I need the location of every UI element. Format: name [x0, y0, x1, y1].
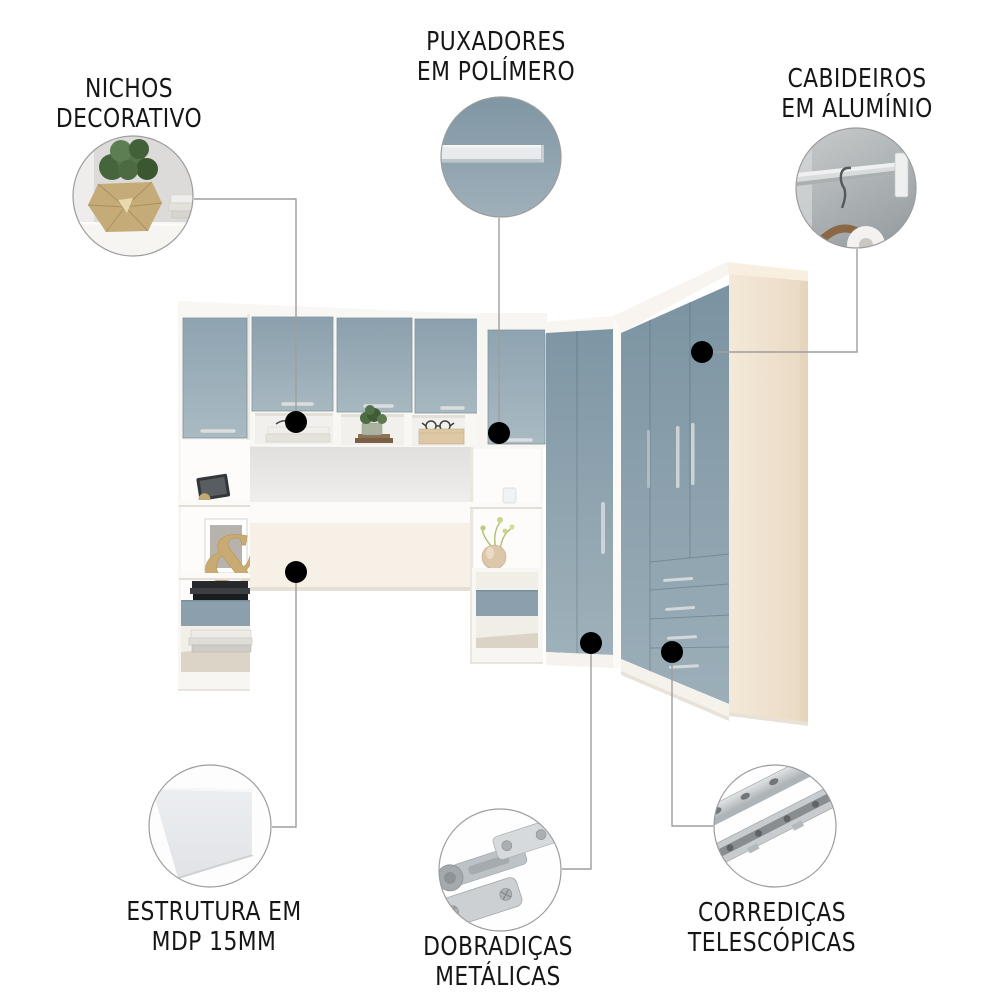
aluminum-rail-photo-icon	[796, 128, 916, 264]
bridge-door-1	[252, 317, 333, 411]
wardrobe-illustration: &	[178, 262, 808, 726]
bridge-cabinets	[250, 315, 478, 450]
label-line: TELESCÓPICAS	[671, 928, 873, 958]
corner-door	[546, 329, 613, 655]
left-tower-door-handle	[200, 429, 236, 433]
light-books-stack	[189, 630, 252, 652]
callout-label-corredicas: CORREDIÇAS TELESCÓPICAS	[671, 898, 873, 958]
glass-cup	[503, 488, 516, 503]
left-tower: &	[178, 314, 261, 690]
callout-dot-corredicas	[661, 641, 683, 663]
telescopic-slides-photo-icon	[683, 751, 846, 888]
corner-edge	[613, 316, 621, 668]
metal-hinge-photo-icon	[419, 808, 573, 932]
callout-label-puxadores: PUXADORES EM POLÍMERO	[395, 27, 597, 87]
right-tower-top-cabinet	[477, 313, 547, 447]
door-handle	[505, 438, 533, 442]
books-on-shelf	[169, 195, 198, 218]
label-line: ESTRUTURA EM	[113, 897, 315, 927]
corner-door-handle	[601, 502, 605, 554]
callout-label-dobradicas: DOBRADIÇAS METÁLICAS	[397, 932, 599, 992]
door-handle	[676, 426, 680, 488]
connector-line-dobradicas	[562, 643, 591, 869]
label-line: METÁLICAS	[397, 962, 599, 992]
label-line: CORREDIÇAS	[671, 898, 873, 928]
callout-label-estrutura: ESTRUTURA EM MDP 15MM	[113, 897, 315, 957]
label-line: PUXADORES	[395, 27, 597, 57]
door-handle	[691, 423, 695, 485]
polymer-handle-photo-icon	[436, 97, 561, 217]
door-handle	[281, 402, 314, 406]
door-handle	[440, 406, 465, 410]
callout-circle-cabideiros	[796, 128, 916, 264]
wardrobe-illustration-svg: &	[0, 0, 1000, 1000]
label-line: CABIDEIROS	[756, 64, 958, 94]
callout-circle-dobradicas	[419, 808, 573, 932]
right-tower-drawer	[476, 590, 538, 616]
left-tower-door	[183, 318, 247, 438]
left-tower-drawer	[181, 600, 250, 626]
product-infographic: &	[0, 0, 1000, 1000]
headboard-panel	[250, 447, 470, 591]
connector-line-estrutura	[272, 572, 296, 827]
callout-dot-dobradicas	[580, 632, 602, 654]
wing-doors-face	[621, 285, 729, 704]
callout-circle-nichos	[72, 135, 198, 260]
callout-label-cabideiros: CABIDEIROS EM ALUMÍNIO	[756, 64, 958, 124]
callout-dot-estrutura	[285, 561, 307, 583]
callout-circle-corredicas	[683, 751, 846, 888]
label-line: EM POLÍMERO	[395, 57, 597, 87]
callout-circle-puxadores	[436, 97, 561, 217]
label-line: DECORATIVO	[28, 104, 230, 134]
door-handle	[647, 430, 650, 488]
callout-dot-puxadores	[488, 422, 510, 444]
label-line: MDP 15MM	[113, 927, 315, 957]
label-line: NICHOS	[28, 74, 230, 104]
callout-circle-estrutura	[148, 764, 272, 888]
dark-books-stack	[190, 581, 250, 600]
label-line: EM ALUMÍNIO	[756, 94, 958, 124]
bridge-door-2	[337, 318, 412, 412]
cream-side-panel	[729, 274, 808, 722]
label-line: DOBRADIÇAS	[397, 932, 599, 962]
callout-dot-nichos	[285, 411, 307, 433]
callout-dot-cabideiros	[691, 341, 713, 363]
bridge-door-3	[415, 319, 478, 413]
right-tower	[470, 447, 543, 663]
callout-label-nichos: NICHOS DECORATIVO	[28, 74, 230, 134]
